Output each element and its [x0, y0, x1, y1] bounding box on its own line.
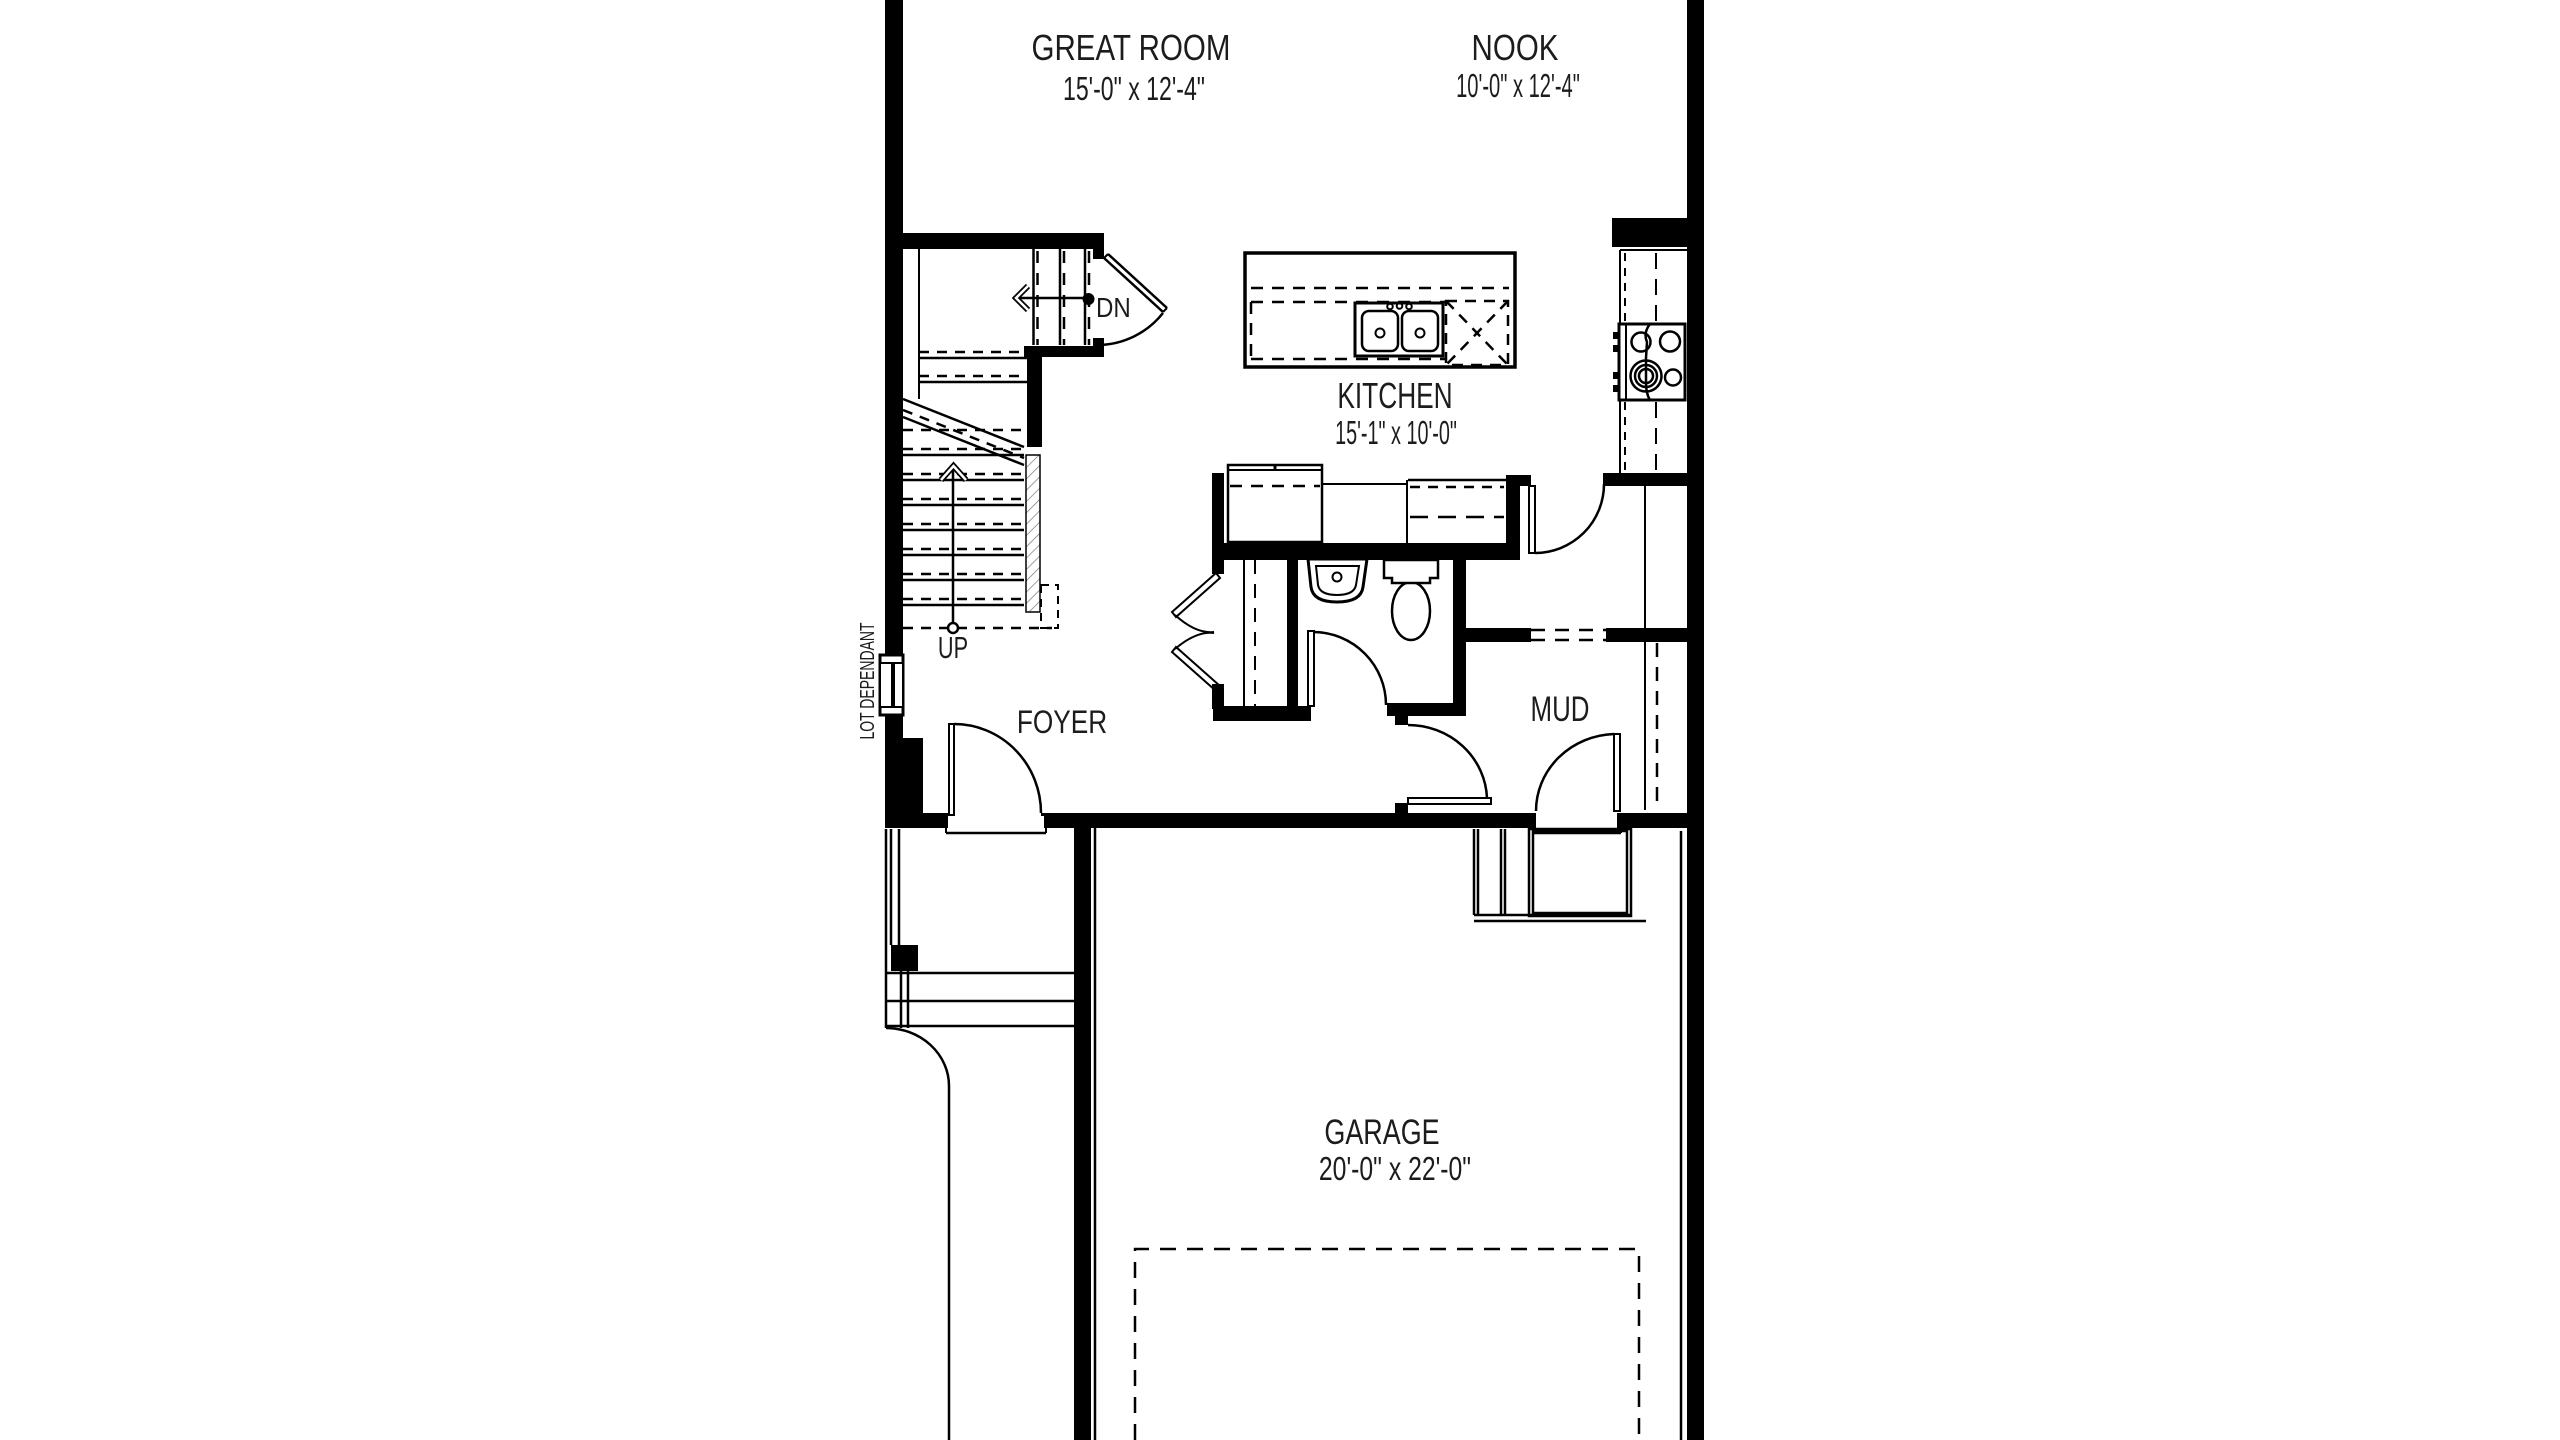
svg-text:FOYER: FOYER: [1017, 706, 1107, 741]
svg-text:KITCHEN: KITCHEN: [1337, 375, 1452, 416]
svg-text:UP: UP: [938, 630, 968, 665]
svg-text:15'-0" x 12'-4": 15'-0" x 12'-4": [1063, 71, 1205, 108]
svg-text:GREAT ROOM: GREAT ROOM: [1032, 27, 1231, 67]
svg-text:LOT DEPENDANT: LOT DEPENDANT: [855, 622, 878, 739]
svg-text:10'-0" x 12'-4": 10'-0" x 12'-4": [1456, 67, 1580, 104]
svg-text:DN: DN: [1096, 291, 1131, 323]
svg-text:15'-1" x 10'-0": 15'-1" x 10'-0": [1335, 414, 1457, 452]
svg-text:NOOK: NOOK: [1472, 27, 1559, 67]
svg-text:GARAGE: GARAGE: [1324, 1113, 1439, 1152]
svg-text:20'-0" x 22'-0": 20'-0" x 22'-0": [1319, 1152, 1471, 1188]
svg-text:MUD: MUD: [1531, 689, 1590, 729]
